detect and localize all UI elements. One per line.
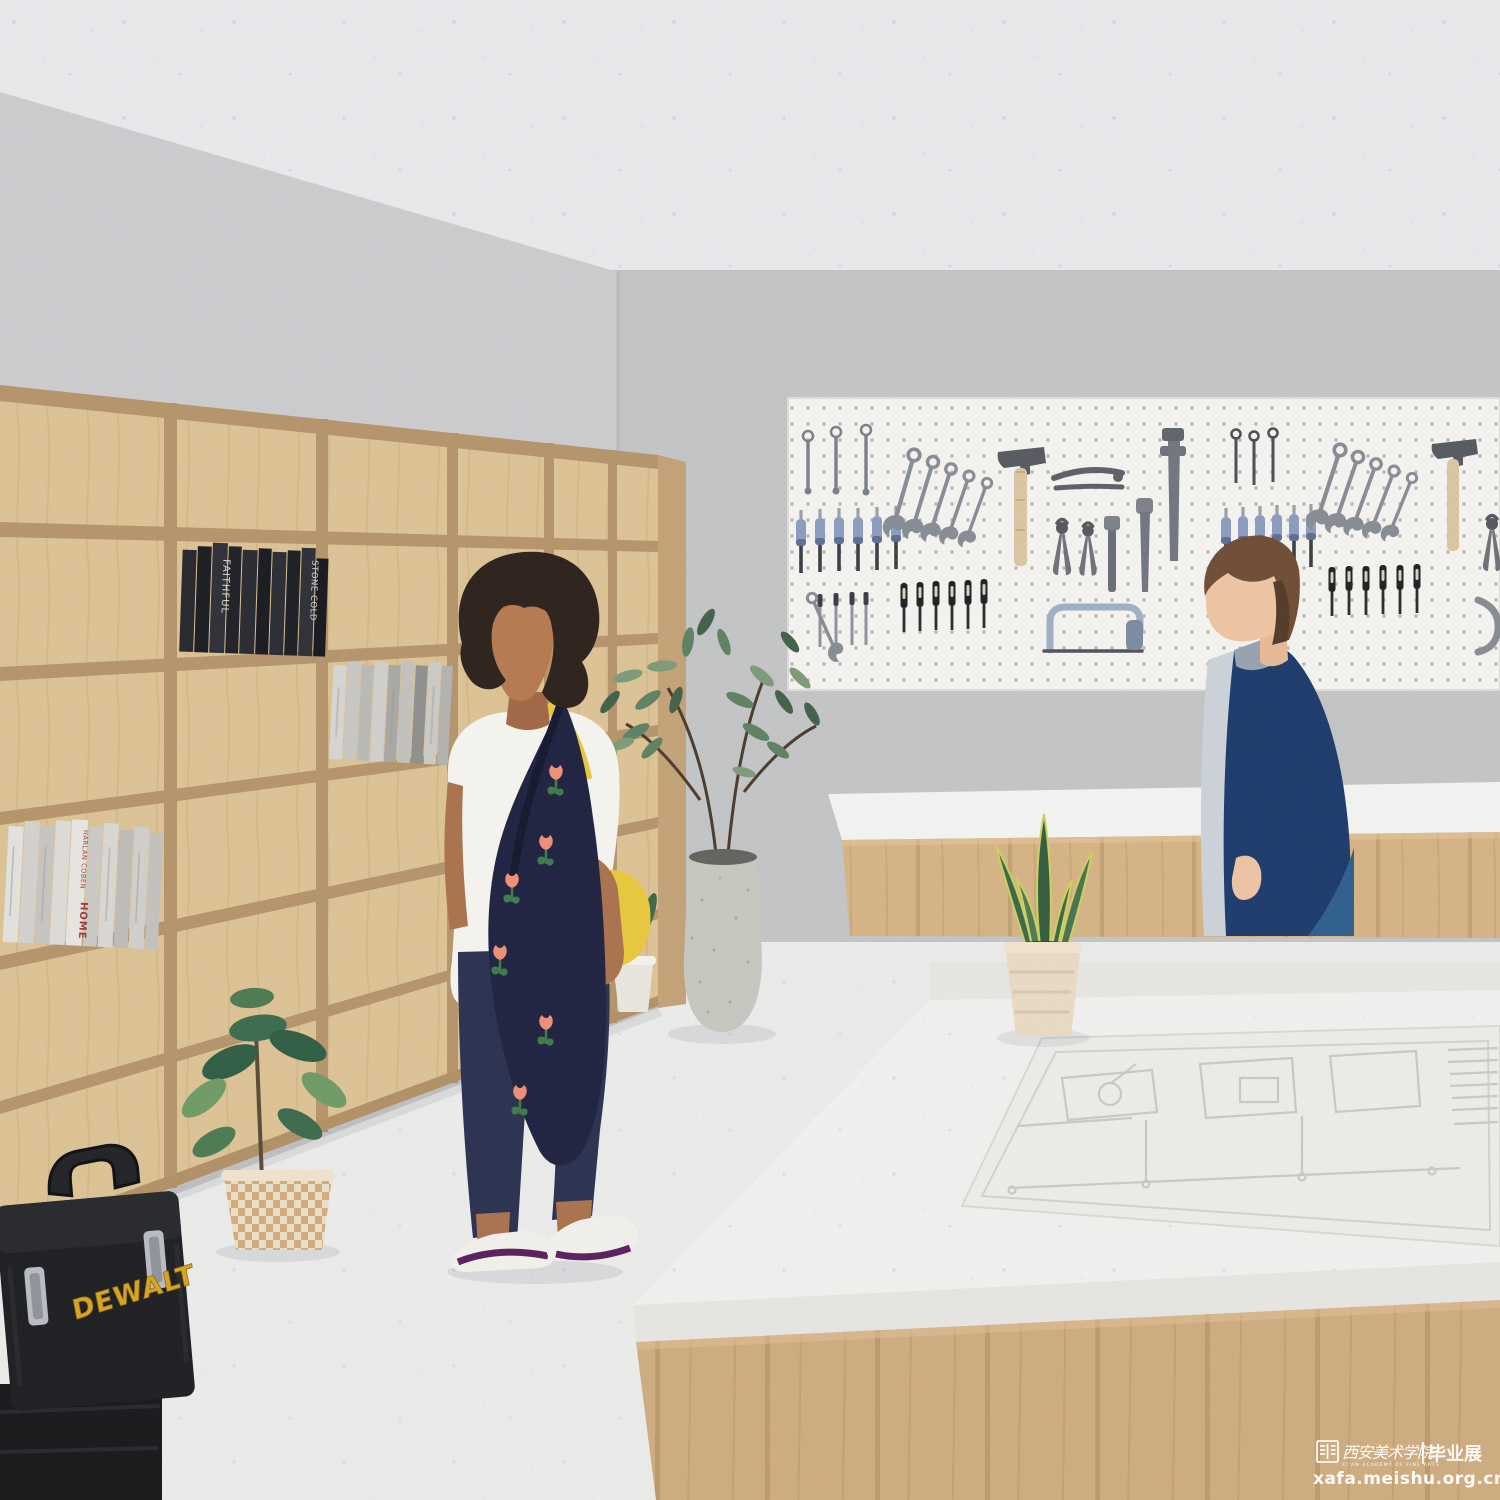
academy-name-en: XI'AN ACADEMY OF FINE ARTS: [1342, 1462, 1440, 1468]
exhibition-label: 毕业展: [1428, 1444, 1483, 1465]
texture-overlay: [0, 0, 1500, 1500]
watermark-url: xafa.meishu.org.cn: [1313, 1469, 1500, 1489]
academy-name-cn: 西安美术学院: [1342, 1443, 1436, 1462]
workshop-illustration: FAITHFUL STONE COLD HARLAN COBEN HOME: [0, 0, 1500, 1500]
watermark-divider: [1422, 1442, 1424, 1464]
